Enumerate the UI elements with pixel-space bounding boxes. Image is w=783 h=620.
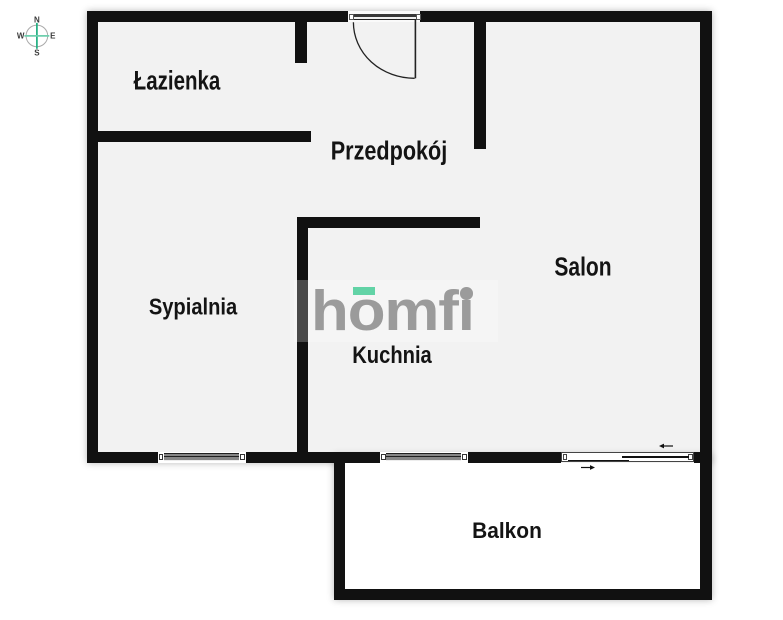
svg-text:N: N [34,15,40,24]
svg-text:S: S [34,49,40,58]
svg-text:E: E [50,32,56,41]
svg-text:W: W [17,32,25,41]
